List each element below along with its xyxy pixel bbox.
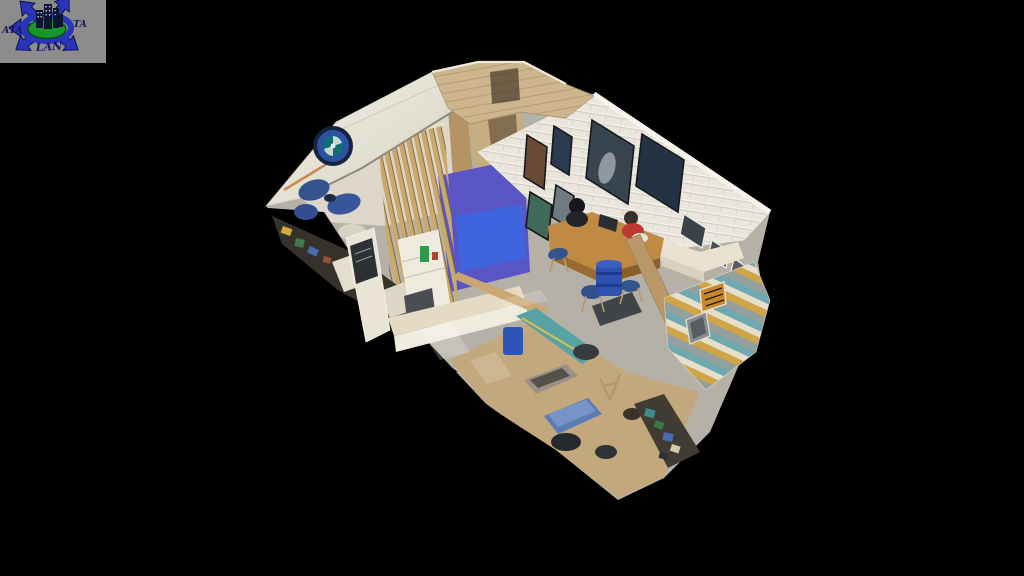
blue-barrel-workshop: [503, 327, 523, 355]
person-dark-body: [566, 211, 588, 227]
dollhouse-render: [0, 0, 1024, 576]
logo-text-left: ATA: [1, 25, 23, 36]
blue-barrel-desk: [596, 264, 622, 296]
dartboard: [313, 126, 353, 166]
logo-text-right: TA: [73, 19, 87, 30]
person-red-head: [624, 211, 638, 225]
viewer-stage: ATA TA LAN: [0, 0, 1024, 576]
desk-chair-3: [620, 280, 640, 292]
red-item: [432, 252, 438, 260]
logo-text-bottom: LAN: [34, 40, 63, 54]
brand-watermark: ATA TA LAN: [0, 0, 106, 63]
dollhouse-3d-view[interactable]: [0, 0, 1024, 576]
green-canister: [420, 246, 429, 262]
top-doorway-opening: [490, 68, 520, 104]
